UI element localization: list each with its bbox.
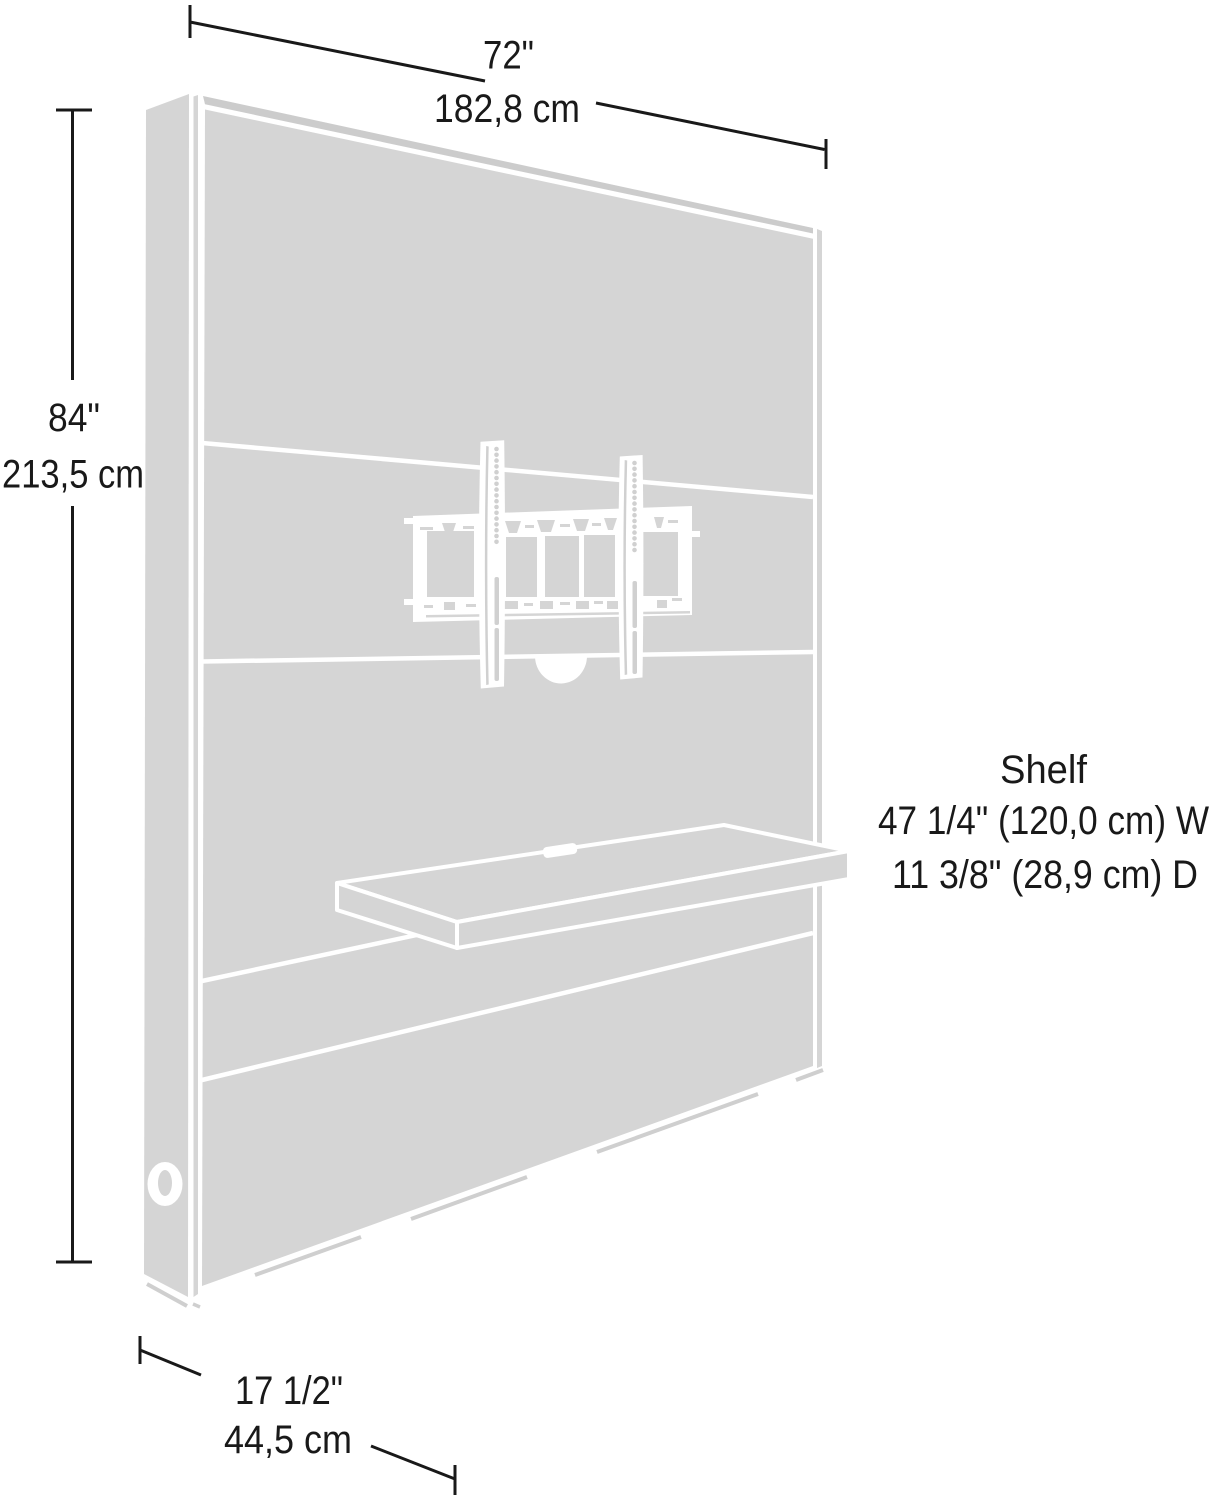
svg-text:47 1/4" (120,0 cm) W: 47 1/4" (120,0 cm) W xyxy=(878,799,1209,843)
svg-text:72": 72" xyxy=(483,34,534,78)
svg-text:84": 84" xyxy=(48,396,100,440)
svg-text:Shelf: Shelf xyxy=(1000,748,1088,792)
svg-text:182,8 cm: 182,8 cm xyxy=(434,87,580,131)
svg-text:44,5 cm: 44,5 cm xyxy=(224,1418,352,1462)
svg-text:213,5 cm: 213,5 cm xyxy=(2,453,144,497)
svg-text:17 1/2": 17 1/2" xyxy=(235,1369,343,1413)
svg-text:11 3/8" (28,9 cm) D: 11 3/8" (28,9 cm) D xyxy=(892,853,1198,897)
